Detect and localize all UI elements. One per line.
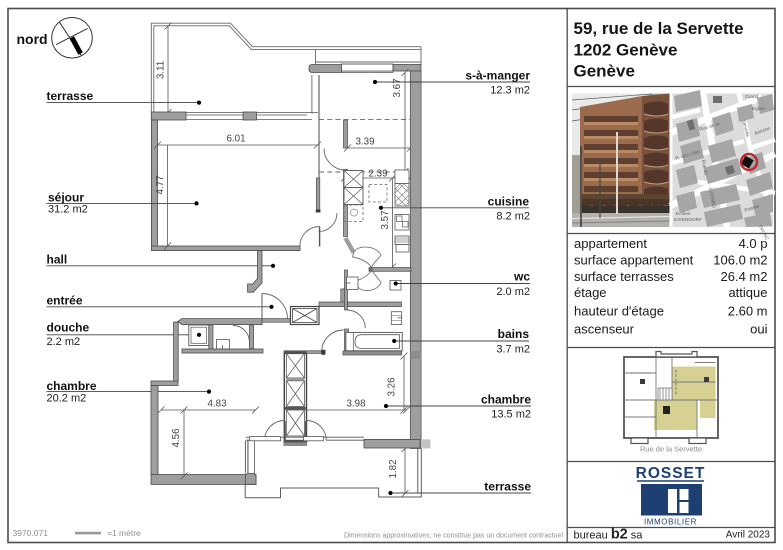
- svg-text:3970.071: 3970.071: [13, 528, 49, 538]
- svg-text:Grand: Grand: [745, 94, 759, 100]
- svg-text:3.98: 3.98: [346, 399, 366, 410]
- svg-text:wc: wc: [513, 270, 530, 284]
- svg-text:appartement: appartement: [574, 236, 647, 251]
- svg-text:Ecoles: Ecoles: [676, 211, 691, 217]
- svg-text:6.01: 6.01: [226, 134, 245, 145]
- svg-text:surface terrasses: surface terrasses: [574, 269, 674, 284]
- svg-text:bains: bains: [498, 327, 530, 341]
- svg-text:Avril 2023: Avril 2023: [726, 530, 771, 541]
- svg-text:1202 Genève: 1202 Genève: [574, 41, 678, 60]
- svg-text:oui: oui: [750, 322, 767, 337]
- svg-text:hall: hall: [47, 253, 68, 267]
- svg-text:Dimensions approximatives, ne: Dimensions approximatives, ne constitue …: [344, 533, 564, 540]
- svg-text:3.67: 3.67: [392, 78, 403, 97]
- svg-text:4.56: 4.56: [171, 428, 182, 448]
- svg-text:3.7 m2: 3.7 m2: [496, 344, 530, 356]
- svg-text:8.2 m2: 8.2 m2: [496, 211, 530, 223]
- svg-text:cuisine: cuisine: [488, 195, 530, 209]
- svg-text:2.39: 2.39: [368, 169, 387, 180]
- svg-text:=1 mètre: =1 mètre: [107, 528, 141, 538]
- svg-text:ascenseur: ascenseur: [574, 322, 635, 337]
- svg-text:surface appartement: surface appartement: [574, 253, 694, 268]
- svg-text:1.82: 1.82: [388, 459, 399, 478]
- svg-text:13.5 m2: 13.5 m2: [491, 409, 531, 421]
- svg-text:12.3 m2: 12.3 m2: [490, 85, 530, 97]
- svg-text:59, rue de la Servette: 59, rue de la Servette: [574, 19, 744, 38]
- svg-text:chambre: chambre: [47, 379, 97, 393]
- svg-text:4.83: 4.83: [207, 399, 227, 410]
- svg-text:Rue de la Servette: Rue de la Servette: [640, 445, 702, 454]
- svg-text:3.39: 3.39: [355, 137, 374, 148]
- svg-text:2.60 m: 2.60 m: [728, 304, 768, 319]
- svg-text:séjour: séjour: [48, 191, 84, 205]
- svg-text:entrée: entrée: [47, 294, 83, 308]
- svg-text:Genève: Genève: [574, 62, 635, 81]
- svg-text:étage: étage: [574, 285, 607, 300]
- svg-text:4.77: 4.77: [155, 175, 166, 194]
- svg-text:2.2 m2: 2.2 m2: [47, 336, 81, 348]
- svg-text:douche: douche: [47, 321, 90, 335]
- svg-text:chambre: chambre: [481, 393, 531, 407]
- svg-text:31.2 m2: 31.2 m2: [48, 204, 88, 216]
- svg-text:3.26: 3.26: [387, 377, 398, 397]
- svg-text:3.57: 3.57: [380, 210, 391, 229]
- svg-text:106.0 m2: 106.0 m2: [713, 253, 767, 268]
- svg-text:3.11: 3.11: [156, 61, 167, 79]
- svg-text:s-à-manger: s-à-manger: [465, 69, 530, 83]
- svg-text:EISENDORF: EISENDORF: [674, 217, 702, 223]
- svg-text:20.2 m2: 20.2 m2: [47, 393, 87, 405]
- svg-text:2.0 m2: 2.0 m2: [496, 286, 530, 298]
- svg-text:attique: attique: [728, 285, 767, 300]
- svg-text:ROSSET: ROSSET: [636, 465, 706, 482]
- svg-text:Eglise: Eglise: [752, 106, 765, 112]
- svg-text:terrasse: terrasse: [47, 89, 94, 103]
- svg-text:nord: nord: [17, 31, 48, 47]
- svg-text:26.4 m2: 26.4 m2: [721, 269, 768, 284]
- svg-text:IMMOBILIER: IMMOBILIER: [644, 518, 697, 527]
- svg-text:bureau b2 sa: bureau b2 sa: [574, 527, 644, 543]
- svg-text:4.0 p: 4.0 p: [739, 236, 768, 251]
- svg-text:hauteur d'étage: hauteur d'étage: [574, 304, 664, 319]
- svg-text:terrasse: terrasse: [484, 480, 531, 494]
